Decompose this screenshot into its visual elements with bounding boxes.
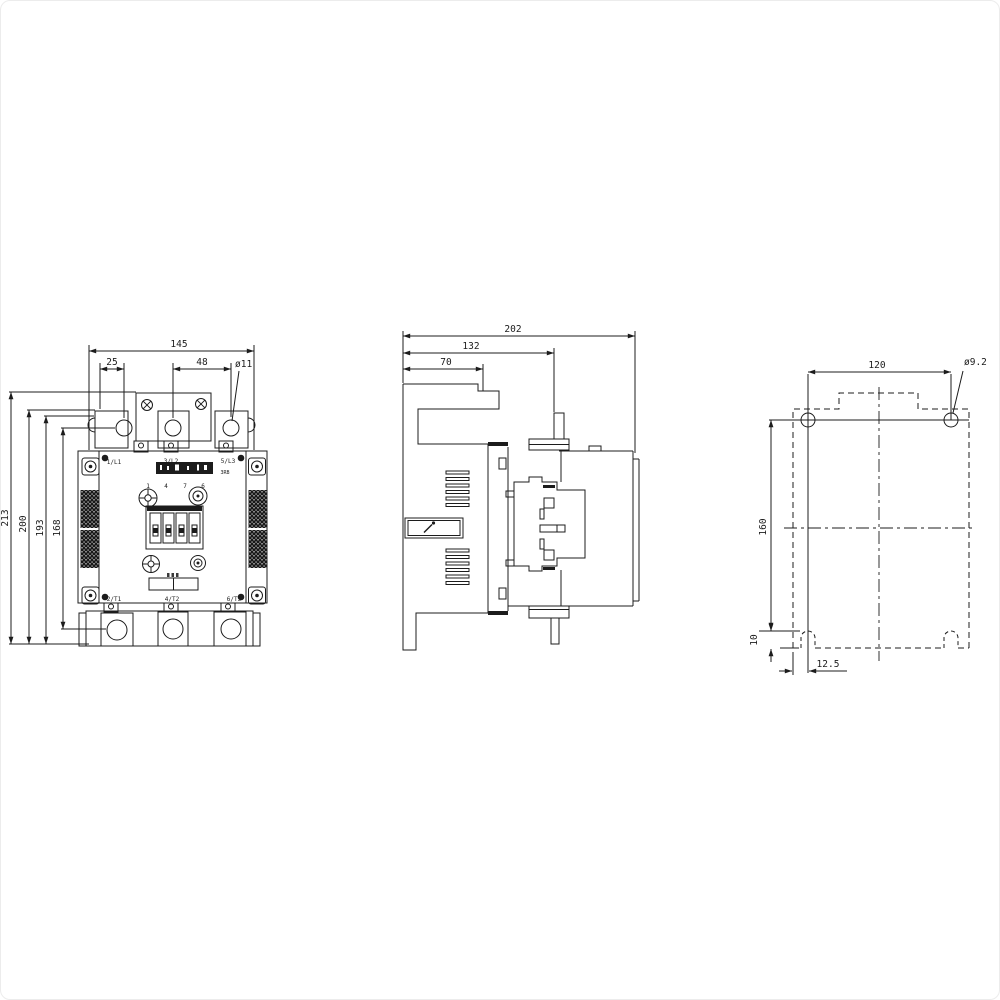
footprint-outline [769,374,974,673]
dim-depth-total: 202 [504,324,521,335]
dimension-drawing-svg: 145 25 48 ø11 213 200 193 168 [1,1,999,999]
dim-slot-depth: 10 [749,634,760,646]
terminal-label-2t1: 2/T1 [107,596,122,603]
auxiliary-contact-block [146,506,203,549]
footprint-view: 120 ø9.2 160 10 12.5 [749,357,987,675]
dim-vertical-spacing: 160 [758,518,769,535]
side-label-plate [405,518,463,538]
front-view-body: 1/L1 3/L2 5/L3 3RB 1 4 7 6 [78,451,267,604]
dim-height-d: 168 [52,519,63,536]
coil-terminal-number-3: 7 [183,483,187,490]
terminal-hole-l3 [223,420,239,436]
screw-cross-left [142,400,153,411]
dim-mounting-hole-dia: ø9.2 [964,357,987,368]
terminal-label-4t2: 4/T2 [165,596,180,603]
terminal-hole-l1 [116,420,132,436]
type-code-label: 3RB [220,470,229,476]
dim-hole-dia: ø11 [235,359,252,370]
nameplate-window [149,578,198,590]
screw-cross-right [196,399,207,410]
side-bottom-lug [529,606,569,644]
coil-screw-bottom-right [191,556,206,571]
terminal-label-6t3: 6/T3 [227,596,242,603]
product-dimension-drawing: 145 25 48 ø11 213 200 193 168 [0,0,1000,1000]
side-view: 202 132 70 [403,324,639,650]
side-rear-body [508,446,639,606]
coil-screw-top-left [139,489,157,507]
dim-height-c: 193 [35,519,46,536]
din-rail-clip [506,477,585,571]
side-center-tower [488,442,508,615]
coil-screw-bottom-left [143,556,160,573]
dim-height-total: 213 [1,509,11,526]
side-view-dimensions: 202 132 70 [403,324,635,453]
dim-slot-offset: 12.5 [817,659,840,670]
dim-depth-b: 132 [462,341,479,352]
rating-plate [156,462,213,474]
terminal-label-1l1: 1/L1 [107,459,122,466]
front-view-dimensions: 145 25 48 ø11 213 200 193 168 [1,339,254,644]
screwdriver-icon [424,521,435,532]
terminal-hole-l2 [165,420,181,436]
mounting-slots [801,631,958,648]
dim-width-right: 48 [196,357,208,368]
dim-height-b: 200 [18,515,29,532]
terminal-label-5l3: 5/L3 [221,458,236,465]
dim-depth-c: 70 [440,357,452,368]
front-view-top-terminals [88,393,255,452]
terminal-hole-t1 [107,620,127,640]
dim-width-total: 145 [170,339,187,350]
dim-hole-spacing: 120 [868,360,885,371]
terminal-hole-t2 [163,619,183,639]
dim-width-left: 25 [106,357,117,368]
coil-terminal-number-2: 4 [164,483,168,490]
coil-screw-top-right [189,487,207,505]
vent-slots [446,471,469,585]
front-view-bottom-terminals [79,603,260,646]
side-top-lug [529,413,569,450]
side-view-body [403,384,639,650]
front-view: 145 25 48 ø11 213 200 193 168 [1,339,267,646]
terminal-hole-t3 [221,619,241,639]
